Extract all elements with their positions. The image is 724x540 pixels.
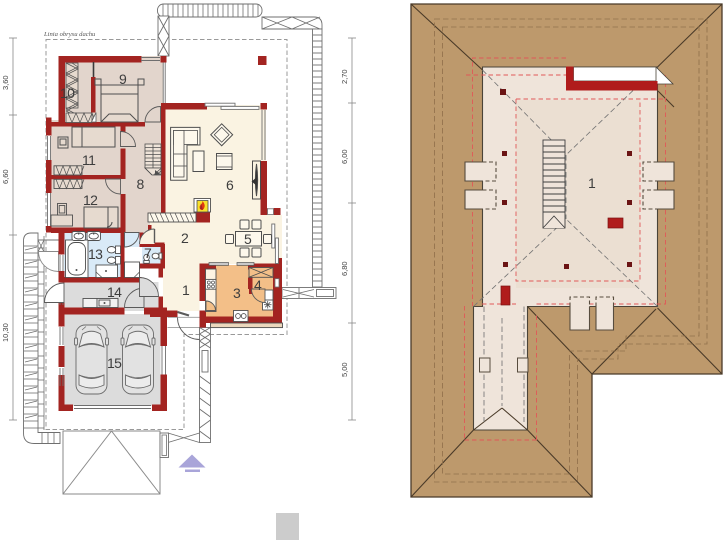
svg-text:11: 11	[82, 152, 96, 168]
svg-text:12: 12	[83, 192, 98, 208]
svg-text:6,00: 6,00	[340, 149, 349, 164]
svg-text:4: 4	[254, 277, 262, 293]
svg-text:1: 1	[182, 282, 190, 298]
svg-text:13: 13	[88, 246, 103, 262]
svg-text:8: 8	[137, 176, 145, 192]
svg-text:10,30: 10,30	[1, 323, 10, 342]
svg-text:7: 7	[144, 245, 152, 261]
svg-text:6: 6	[226, 177, 234, 193]
svg-text:1: 1	[588, 175, 596, 191]
svg-text:9: 9	[119, 71, 127, 87]
svg-text:5,00: 5,00	[340, 362, 349, 377]
svg-text:6,80: 6,80	[340, 261, 349, 276]
svg-text:5: 5	[244, 231, 252, 247]
svg-text:3: 3	[233, 285, 241, 301]
svg-text:6,60: 6,60	[1, 169, 10, 184]
svg-text:2,70: 2,70	[340, 69, 349, 84]
svg-text:14: 14	[107, 284, 122, 300]
svg-text:Linia obrysu dachu: Linia obrysu dachu	[43, 31, 96, 38]
svg-text:2: 2	[181, 230, 189, 246]
svg-text:15: 15	[107, 355, 122, 371]
svg-text:3,60: 3,60	[1, 75, 10, 90]
svg-text:10: 10	[60, 85, 75, 101]
